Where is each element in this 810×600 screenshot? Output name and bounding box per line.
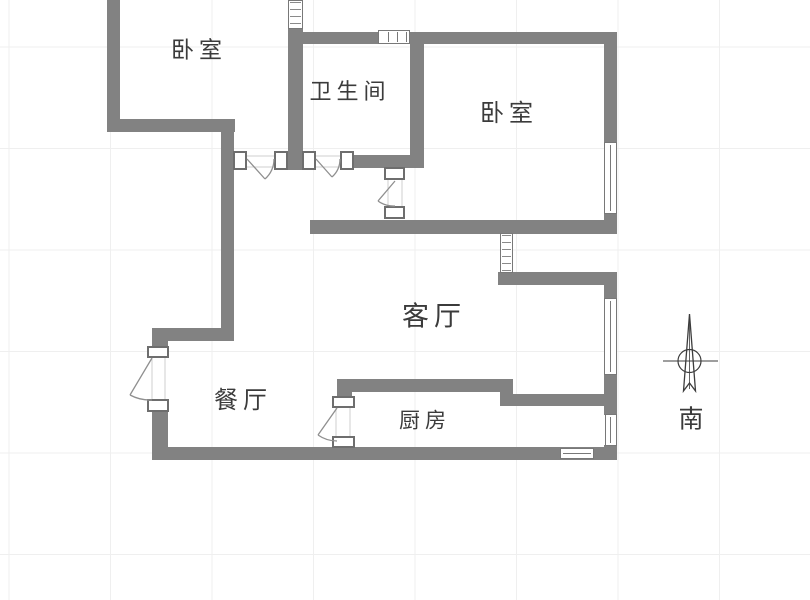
compass	[663, 314, 718, 391]
door-swing-bedroom-left	[247, 159, 274, 179]
door-opening-lines	[152, 156, 402, 436]
room-label-kitchen: 厨房	[399, 411, 451, 432]
door-swing-bathroom	[316, 159, 340, 177]
compass-south-label: 南	[678, 408, 703, 433]
room-label-bedroom-right: 卧室	[480, 102, 538, 126]
plan-linework	[0, 0, 810, 600]
door-swing-bedroom-right	[378, 181, 395, 206]
door-swing-dining	[130, 358, 152, 400]
door-swing-kitchen	[318, 408, 337, 441]
floor-plan: 卧室 卫生间 卧室 客厅 餐厅 厨房 南	[0, 0, 810, 600]
room-label-bedroom-left: 卧室	[171, 39, 227, 62]
room-label-bathroom: 卫生间	[309, 81, 390, 103]
room-label-dining: 餐厅	[214, 389, 272, 413]
room-label-living: 客厅	[402, 304, 466, 331]
